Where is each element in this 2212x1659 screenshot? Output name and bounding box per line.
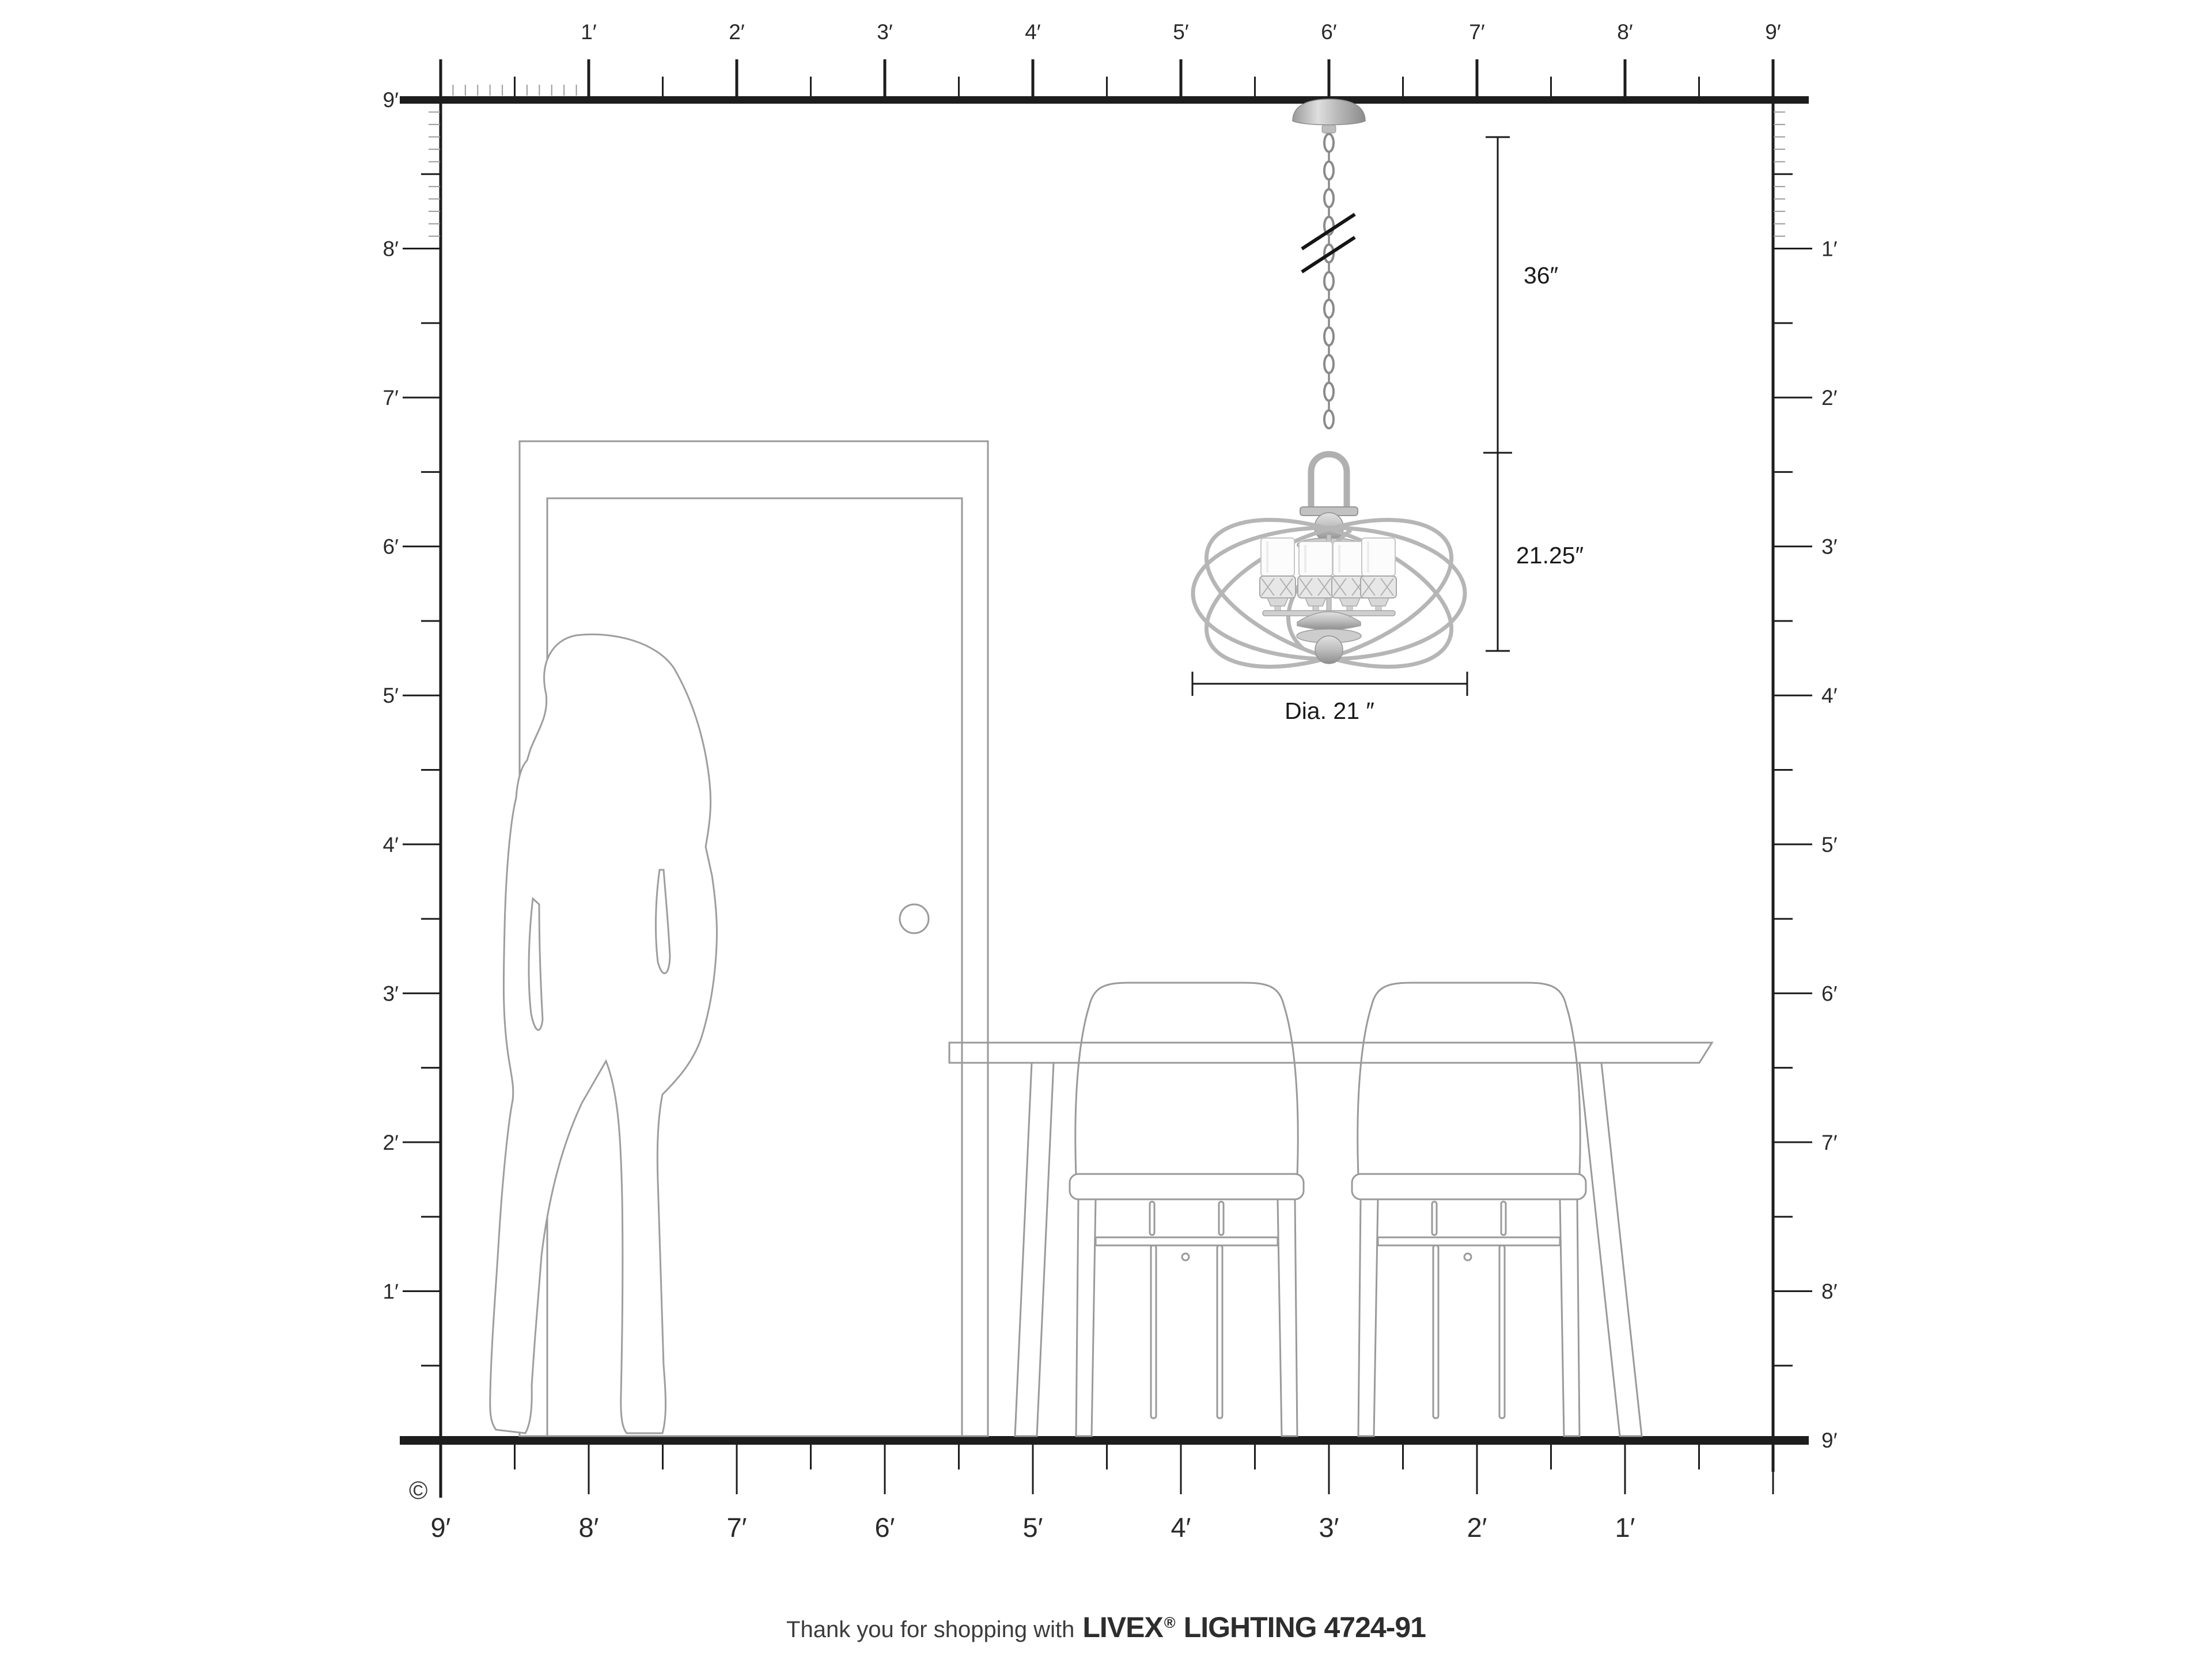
right-ruler: 1′2′3′4′5′6′7′8′9′ — [1774, 112, 1838, 1452]
right-ruler-label: 1′ — [1821, 237, 1838, 261]
chain-link — [1324, 162, 1334, 180]
chain-link — [1324, 300, 1334, 318]
diameter-label: Dia. 21 ″ — [1285, 698, 1374, 724]
chain-link — [1324, 328, 1334, 346]
chair-left-leg — [1076, 1199, 1096, 1436]
product-dimension-diagram-page: { "title": "Livex Lighting pendant size … — [0, 0, 2212, 1659]
chair-tenon-slot — [1432, 1202, 1437, 1235]
right-ruler-label: 9′ — [1821, 1429, 1838, 1452]
lattice-cup — [1298, 576, 1334, 598]
chain-link — [1324, 134, 1334, 152]
footer-brand-name: LIVEX — [1082, 1611, 1163, 1643]
right-ruler-label: 2′ — [1821, 386, 1838, 410]
chair-inner-rail — [1217, 1245, 1222, 1418]
dining-chair — [1352, 983, 1586, 1436]
scale-figure-woman — [490, 634, 717, 1433]
cup-base — [1339, 598, 1360, 606]
chain-link — [1324, 190, 1334, 207]
chair-apron — [1096, 1237, 1278, 1245]
hanger-ring — [1311, 454, 1347, 510]
bottom-ruler-label: 7′ — [727, 1512, 747, 1543]
chair-tenon-slot — [1501, 1202, 1506, 1235]
top-ruler-label: 7′ — [1469, 20, 1485, 44]
chair-inner-rail — [1433, 1245, 1438, 1418]
top-ruler-label: 2′ — [729, 20, 745, 44]
top-ruler: 1′2′3′4′5′6′7′8′9′ — [441, 20, 1781, 96]
cup-base — [1368, 598, 1389, 606]
chair-bolt-detail — [1182, 1253, 1189, 1260]
table-right-leg — [1580, 1063, 1642, 1436]
chair-apron — [1378, 1237, 1560, 1245]
footer-line: Thank you for shopping withLIVEX®LIGHTIN… — [786, 1611, 1426, 1643]
left-ruler-label: 3′ — [382, 982, 399, 1005]
top-ruler-label: 8′ — [1617, 20, 1633, 44]
canopy-collar — [1322, 125, 1336, 133]
left-ruler-label: 1′ — [382, 1279, 399, 1303]
top-ruler-label: 5′ — [1173, 20, 1189, 44]
bottom-ruler-label: 2′ — [1467, 1512, 1487, 1543]
chain-length-label: 36″ — [1524, 262, 1558, 289]
chair-tenon-slot — [1150, 1202, 1154, 1235]
chain-link — [1324, 411, 1334, 429]
left-ruler-label: 6′ — [382, 535, 399, 559]
top-ruler-label: 6′ — [1321, 20, 1337, 44]
bottom-ruler-label: 6′ — [875, 1512, 895, 1543]
top-ruler-label: 9′ — [1765, 20, 1781, 44]
top-ruler-label: 4′ — [1025, 20, 1041, 44]
left-ruler-label: 9′ — [382, 88, 399, 112]
ceiling-bar — [400, 96, 1809, 104]
chain-link — [1324, 272, 1334, 290]
chair-bolt-detail — [1464, 1253, 1471, 1260]
table-top — [949, 1043, 1712, 1063]
chair-seat — [1070, 1174, 1304, 1199]
right-ruler-label: 8′ — [1821, 1279, 1838, 1303]
chair-left-leg — [1358, 1199, 1378, 1436]
bottom-ruler-label: 5′ — [1023, 1512, 1043, 1543]
door-knob — [900, 904, 929, 933]
dining-set — [949, 983, 1712, 1436]
right-ruler-label: 5′ — [1821, 833, 1838, 857]
cup-base — [1267, 598, 1288, 606]
bottom-finial-ball — [1315, 636, 1343, 664]
right-ruler-label: 7′ — [1821, 1131, 1838, 1154]
left-ruler-label: 4′ — [382, 833, 399, 857]
bottom-ruler-label: 8′ — [579, 1512, 599, 1543]
right-ruler-label: 3′ — [1821, 535, 1838, 559]
pendant-chandelier — [1187, 99, 1471, 696]
bottom-ruler-label: 3′ — [1319, 1512, 1339, 1543]
chair-inner-rail — [1151, 1245, 1156, 1418]
chain-link — [1324, 383, 1334, 401]
glass-shade — [1362, 538, 1395, 576]
footer-thanks-text: Thank you for shopping with — [786, 1617, 1074, 1642]
dining-chair — [1070, 983, 1304, 1436]
top-ruler-label: 3′ — [877, 20, 893, 44]
lattice-cup — [1361, 576, 1396, 598]
lattice-cup — [1260, 576, 1296, 598]
left-ruler-label: 7′ — [382, 386, 399, 410]
bottom-ruler-label: 4′ — [1171, 1512, 1191, 1543]
chair-backrest — [1358, 983, 1580, 1175]
chair-right-leg — [1560, 1199, 1580, 1436]
left-ruler-label: 8′ — [382, 237, 399, 261]
bottom-ruler: 9′8′7′6′5′4′3′2′1′ — [431, 1445, 1773, 1543]
glass-shade — [1299, 541, 1332, 576]
size-diagram-canvas: 1′2′3′4′5′6′7′8′9′ 9′8′7′6′5′4′3′2′1′ 1′… — [0, 0, 2212, 1659]
footer-product-number: LIGHTING 4724-91 — [1184, 1611, 1426, 1643]
hanging-chain — [1324, 134, 1334, 429]
right-ruler-label: 4′ — [1821, 684, 1838, 707]
bottom-ruler-label: 1′ — [1615, 1512, 1635, 1543]
chair-right-leg — [1278, 1199, 1297, 1436]
chair-tenon-slot — [1219, 1202, 1224, 1235]
left-ruler-label: 2′ — [382, 1131, 399, 1154]
bottom-ruler-label: 9′ — [431, 1512, 451, 1543]
chain-link — [1324, 355, 1334, 373]
floor-bar — [400, 1436, 1809, 1445]
registered-trademark-icon: ® — [1164, 1614, 1176, 1631]
chair-seat — [1352, 1174, 1586, 1199]
woman-outline — [490, 634, 717, 1433]
copyright-symbol: © — [409, 1476, 427, 1505]
left-ruler: 9′8′7′6′5′4′3′2′1′ — [382, 88, 440, 1366]
chair-backrest — [1075, 983, 1298, 1175]
glass-shade — [1261, 538, 1294, 576]
chair-inner-rail — [1499, 1245, 1505, 1418]
top-ruler-label: 1′ — [581, 20, 597, 44]
right-ruler-label: 6′ — [1821, 982, 1838, 1005]
table-left-leg — [1015, 1063, 1054, 1436]
left-ruler-label: 5′ — [382, 684, 399, 707]
fixture-height-label: 21.25″ — [1516, 542, 1584, 569]
cup-base — [1305, 598, 1326, 606]
